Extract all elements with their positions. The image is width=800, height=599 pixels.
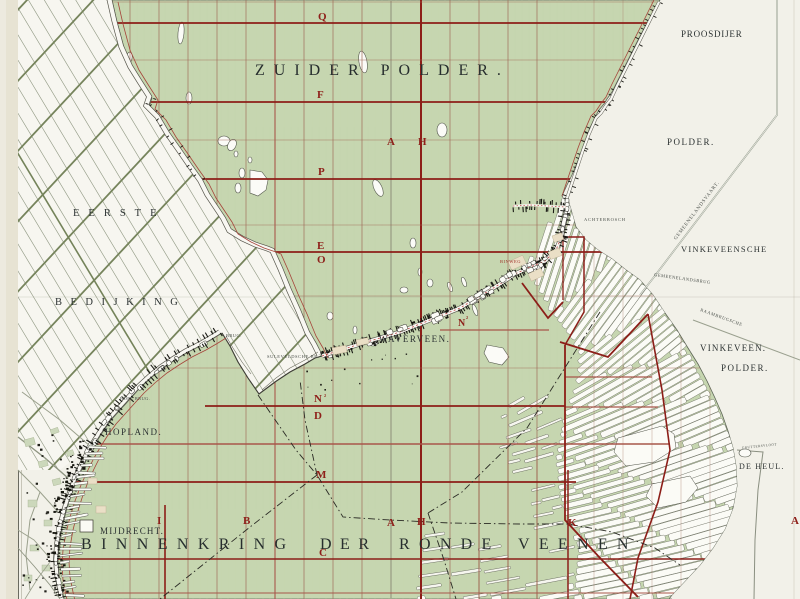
svg-text:MIJDRECHT.: MIJDRECHT. — [100, 526, 164, 536]
svg-text:Q: Q — [318, 11, 327, 23]
svg-text:A: A — [387, 517, 395, 529]
svg-text:BRUG.: BRUG. — [226, 333, 242, 338]
svg-text:PROOSDIJER: PROOSDIJER — [681, 29, 743, 39]
svg-text:EERSTE: EERSTE — [73, 208, 166, 219]
svg-text:H: H — [417, 516, 426, 528]
svg-text:VINKEVEENSCHE: VINKEVEENSCHE — [681, 244, 767, 254]
svg-text:BINWEG: BINWEG — [500, 259, 521, 264]
svg-text:WAVERVEEN.: WAVERVEEN. — [379, 334, 450, 344]
svg-text:²: ² — [324, 393, 326, 401]
svg-text:SULEVELDSCHE BR.: SULEVELDSCHE BR. — [267, 354, 320, 359]
svg-text:VEENEN: VEENEN — [518, 536, 638, 553]
svg-text:H: H — [418, 136, 427, 148]
svg-text:POLDER.: POLDER. — [721, 363, 769, 373]
svg-text:RONDE: RONDE — [399, 536, 501, 553]
svg-text:A: A — [791, 515, 799, 527]
svg-text:HOPLAND.: HOPLAND. — [105, 427, 162, 437]
svg-text:HOFL BRUG.: HOFL BRUG. — [120, 396, 150, 401]
svg-text:BINNENKRING: BINNENKRING — [81, 536, 296, 553]
svg-text:F: F — [317, 89, 324, 101]
svg-text:ACHTERBOSCH: ACHTERBOSCH — [584, 217, 626, 222]
svg-text:N: N — [458, 318, 466, 329]
svg-text:M: M — [316, 469, 327, 481]
svg-text:²: ² — [466, 315, 468, 323]
svg-text:POLDER.: POLDER. — [667, 137, 715, 147]
svg-text:A: A — [387, 136, 395, 148]
svg-text:BEDIJKING: BEDIJKING — [55, 297, 186, 308]
svg-text:D: D — [314, 410, 322, 422]
svg-text:N: N — [314, 393, 322, 405]
svg-text:VINKEVEEN.: VINKEVEEN. — [700, 343, 766, 353]
svg-text:E: E — [317, 240, 324, 252]
svg-text:ZUIDER POLDER.: ZUIDER POLDER. — [255, 62, 510, 79]
svg-text:O: O — [317, 254, 326, 266]
svg-text:C: C — [319, 547, 327, 559]
svg-text:B: B — [243, 515, 251, 527]
svg-text:DER: DER — [320, 536, 378, 553]
svg-text:I: I — [157, 515, 161, 527]
svg-text:K: K — [568, 517, 577, 529]
svg-text:DE HEUL.: DE HEUL. — [739, 462, 785, 471]
svg-text:P: P — [318, 166, 325, 178]
